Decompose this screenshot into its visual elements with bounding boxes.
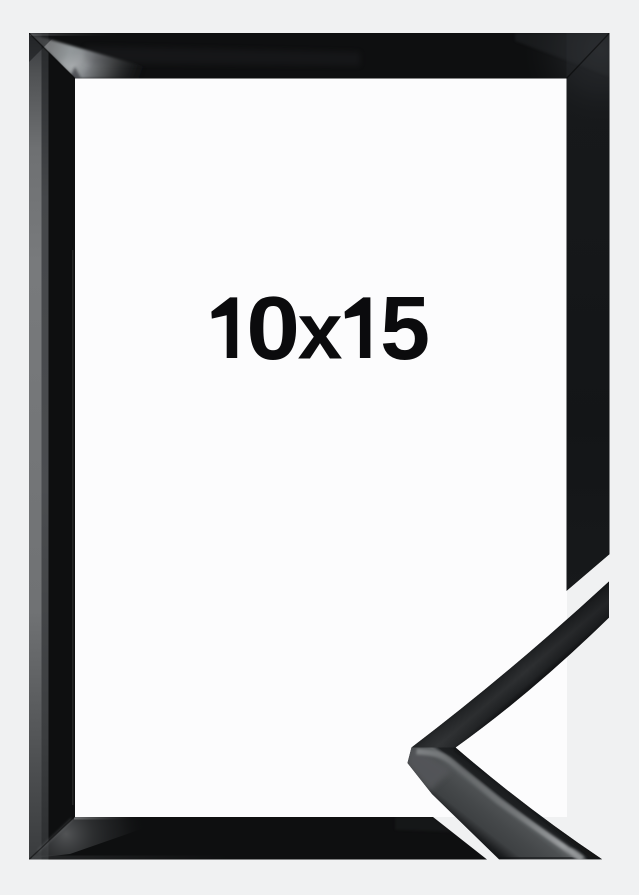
- svg-text:0: 0: [246, 277, 300, 378]
- svg-text:5: 5: [380, 279, 430, 379]
- svg-text:x: x: [298, 287, 343, 377]
